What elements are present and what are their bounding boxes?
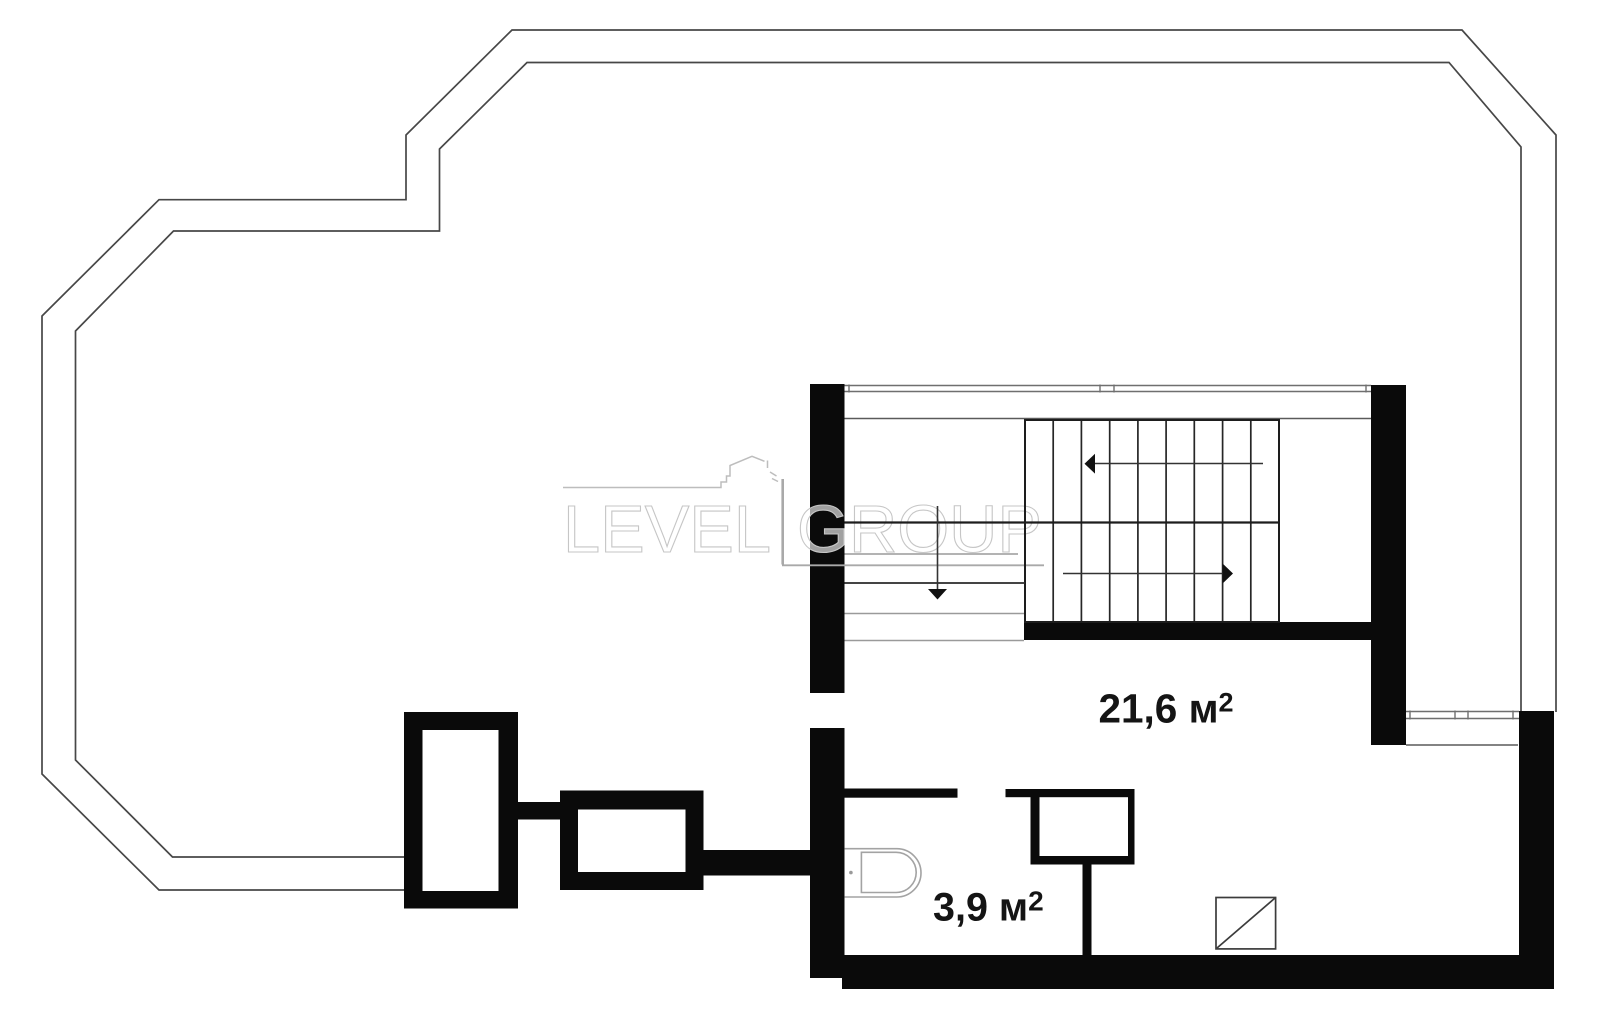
svg-text:GROUP: GROUP (797, 492, 1042, 567)
svg-text:3,9 м2: 3,9 м2 (933, 886, 1044, 930)
svg-text:21,6 м2: 21,6 м2 (1099, 686, 1234, 732)
svg-text:LEVEL: LEVEL (563, 492, 771, 567)
